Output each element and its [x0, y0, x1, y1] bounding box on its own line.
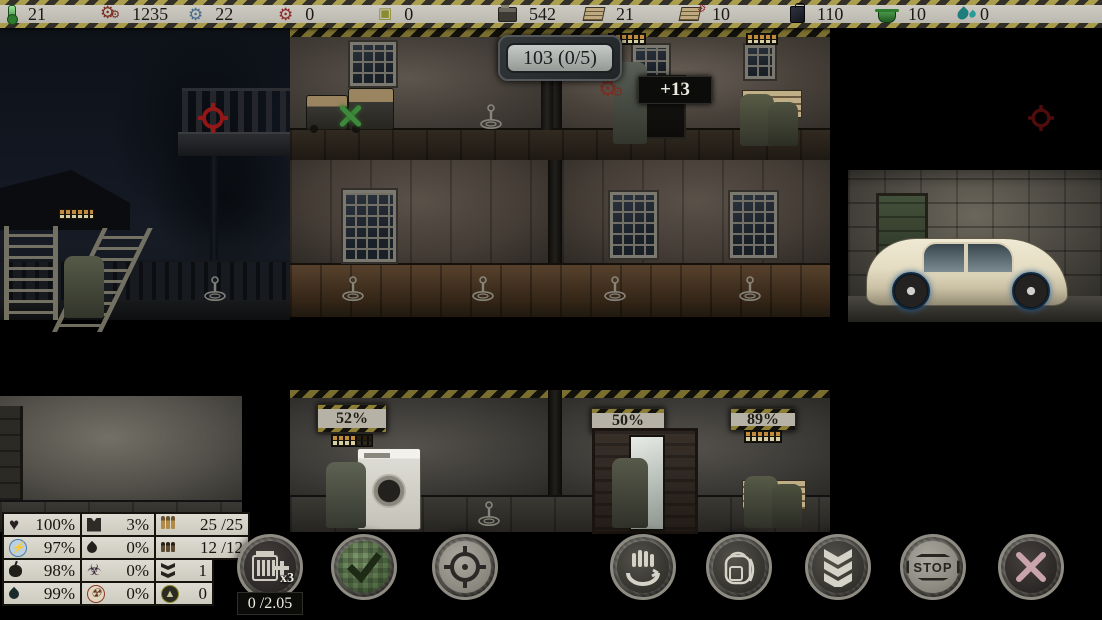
chevrons-down-icon — [820, 547, 856, 587]
resource-fuel: 110 — [790, 4, 843, 24]
storage-percent: 89% — [747, 411, 779, 429]
idle-spot-icon[interactable] — [476, 500, 502, 528]
resource-value: 10 — [908, 4, 926, 24]
stat-value: 25 /25 — [200, 515, 243, 535]
descend-button[interactable] — [805, 534, 871, 600]
resource-value: 1235 — [132, 4, 168, 24]
car-wheel — [892, 272, 930, 310]
resource-value: 22 — [215, 4, 233, 24]
idle-spot-icon[interactable] — [602, 275, 628, 303]
ammo-multiplier: x3 — [280, 571, 294, 587]
room-mid-left-wall — [290, 160, 548, 263]
resource-wheels: ⚙ 0 — [278, 4, 314, 24]
room-number-sign: 103 (0/5) — [498, 35, 622, 81]
idle-spot-icon[interactable] — [470, 275, 496, 303]
zombie-hauler[interactable] — [768, 102, 798, 146]
health-icon: ♥ — [9, 517, 19, 532]
thermometer-icon — [8, 5, 16, 23]
resource-scrap: ⚙⚙ 1235 — [100, 4, 168, 24]
cancel-x-icon — [1013, 549, 1049, 585]
reward-value: +13 — [660, 79, 690, 101]
laundry-percent: 52% — [336, 410, 368, 428]
stat-value: 97% — [44, 538, 75, 558]
stop-button[interactable]: STOP — [900, 534, 966, 600]
resource-value: 21 — [28, 4, 46, 24]
stat-infection: ☣ 0% — [80, 558, 156, 583]
resource-plank-parts: ⚙ 10 — [680, 4, 730, 24]
balcony-floor — [178, 132, 290, 156]
stat-health: ♥ 100% — [2, 512, 82, 537]
energy-icon: ⚡ — [9, 539, 27, 557]
confirm-button[interactable] — [331, 534, 397, 600]
stats-row: 99% ☢ 0% ▲ 0 — [4, 583, 250, 606]
stat-energy: ⚡ 97% — [2, 535, 82, 560]
resource-value: 0 — [404, 4, 413, 24]
window — [610, 192, 657, 258]
resource-food: 10 — [878, 4, 926, 24]
resource-value: 10 — [712, 4, 730, 24]
blue-gear-icon: ⚙ — [188, 6, 203, 23]
survivor-stats-panel: ♥ 100% 3% 25 /25 ⚡ 97% 0% 12 — [4, 514, 250, 606]
survivor-worker[interactable] — [326, 462, 366, 528]
melee-swap-button[interactable] — [610, 534, 676, 600]
wardrobe-percent: 50% — [612, 412, 644, 430]
stat-value: 98% — [44, 561, 75, 581]
window — [745, 45, 775, 79]
room-progress-bar — [331, 434, 373, 447]
ladder[interactable] — [4, 226, 58, 320]
room-number-text: 103 (0/5) — [523, 47, 597, 70]
resource-value: 0 — [980, 4, 989, 24]
chip-icon: ▣ — [378, 6, 392, 23]
idle-spot-icon[interactable] — [478, 103, 504, 131]
press-icon — [498, 7, 517, 22]
backpack-icon — [721, 547, 757, 587]
reward-popup: +13 — [638, 76, 712, 104]
stats-row: ♥ 100% 3% 25 /25 — [4, 514, 250, 537]
checkmark-icon — [346, 549, 382, 585]
resource-machines: 542 — [498, 4, 556, 24]
repair-tools-icon — [336, 102, 366, 132]
hand-rotate-icon — [623, 547, 663, 587]
gears-icon: ⚙⚙ — [598, 80, 623, 100]
zombie-progress-bar — [58, 208, 95, 220]
stat-value: 0 — [199, 584, 208, 604]
target-mode-button[interactable] — [432, 534, 498, 600]
food-icon — [9, 565, 22, 577]
resource-planks: 21 — [584, 4, 634, 24]
stat-value: 12 /12 — [200, 538, 243, 558]
basement-stripe — [290, 390, 548, 398]
stat-food: 98% — [2, 558, 82, 583]
stats-row: 98% ☣ 0% 1 — [4, 560, 250, 583]
room-mid-right-wall — [562, 160, 830, 263]
resource-parts: ⚙ 22 — [188, 4, 233, 24]
red-wheel-icon: ⚙ — [278, 6, 293, 23]
blood-icon — [85, 540, 99, 554]
enemy-target-icon[interactable] — [1028, 105, 1054, 131]
armor-icon — [87, 518, 101, 532]
stat-value: 1 — [199, 561, 208, 581]
idle-spot-icon[interactable] — [340, 275, 366, 303]
resource-electronics: ▣ 0 — [378, 4, 413, 24]
room-progress-sign: 89% — [730, 408, 796, 431]
stat-level-up: ▲ 0 — [154, 581, 214, 606]
stat-pistol-ammo: 12 /12 — [154, 535, 250, 560]
rifle-ammo-icon — [161, 516, 176, 534]
stop-sign-icon: STOP — [906, 554, 959, 581]
infection-icon: ☣ — [87, 563, 101, 578]
car[interactable] — [866, 222, 1068, 312]
washing-machine[interactable] — [357, 448, 421, 530]
stat-value: 0% — [126, 561, 149, 581]
gears-icon: ⚙⚙ — [100, 4, 120, 24]
door-frame — [0, 406, 23, 500]
crosshair-icon — [444, 546, 486, 588]
stat-blood: 0% — [80, 535, 156, 560]
planks-icon — [583, 7, 606, 21]
resource-value: 21 — [616, 4, 634, 24]
window — [730, 192, 777, 258]
ammo-button[interactable]: x3 — [237, 534, 303, 600]
radiation-icon: ☢ — [87, 585, 105, 603]
water-icon — [7, 586, 21, 600]
resource-value: 542 — [529, 4, 556, 24]
stats-row: ⚡ 97% 0% 12 /12 — [4, 537, 250, 560]
level-up-icon: ▲ — [161, 585, 179, 603]
backpack-button[interactable] — [706, 534, 772, 600]
cancel-button[interactable] — [998, 534, 1064, 600]
car-wheel — [1012, 272, 1050, 310]
stat-value: 3% — [126, 515, 149, 535]
pistol-ammo-icon — [161, 539, 176, 557]
stat-rifle-ammo: 25 /25 — [154, 512, 250, 537]
stat-radiation: ☢ 0% — [80, 581, 156, 606]
pot-icon — [878, 10, 896, 23]
stat-value: 100% — [35, 515, 75, 535]
storage-bar — [746, 33, 778, 45]
reload-timer: 0 /2.05 — [237, 592, 303, 615]
zombie[interactable] — [64, 256, 104, 318]
basement-stripe — [562, 390, 830, 398]
zombie-axe[interactable] — [612, 458, 648, 528]
room-progress-bar — [744, 430, 782, 443]
stat-value: 99% — [44, 584, 75, 604]
window — [343, 190, 396, 262]
zombie-hauler[interactable] — [772, 484, 802, 528]
resource-water: 0 — [958, 4, 989, 24]
descend-icon — [161, 563, 175, 578]
car-windows — [922, 242, 1014, 274]
reload-timer-value: 0 /2.05 — [248, 595, 292, 613]
stat-armor: 3% — [80, 512, 156, 537]
idle-spot-icon[interactable] — [202, 275, 228, 303]
room-progress-sign: 52% — [317, 404, 387, 433]
game-viewport: ⚙⚙ +13 103 (0/5) 52% — [0, 0, 1102, 620]
stat-water: 99% — [2, 581, 82, 606]
resource-value: 0 — [305, 4, 314, 24]
water-drops-icon — [955, 6, 971, 22]
stat-descend: 1 — [154, 558, 214, 583]
shadow-overlay — [830, 28, 1102, 188]
enemy-target-icon[interactable] — [198, 103, 228, 133]
window — [350, 42, 396, 86]
resource-temperature: 21 — [8, 4, 46, 24]
stat-value: 0% — [126, 538, 149, 558]
planks-gear-icon: ⚙ — [679, 7, 702, 21]
stat-value: 0% — [126, 584, 149, 604]
idle-spot-icon[interactable] — [737, 275, 763, 303]
jerrycan-icon — [790, 6, 805, 23]
room-bottom-left-wall — [0, 396, 242, 500]
house-roof-silhouette — [0, 170, 130, 230]
resource-bar: 21 ⚙⚙ 1235 ⚙ 22 ⚙ 0 ▣ 0 542 21 ⚙ 10 — [0, 0, 1102, 28]
resource-value: 110 — [817, 4, 843, 24]
